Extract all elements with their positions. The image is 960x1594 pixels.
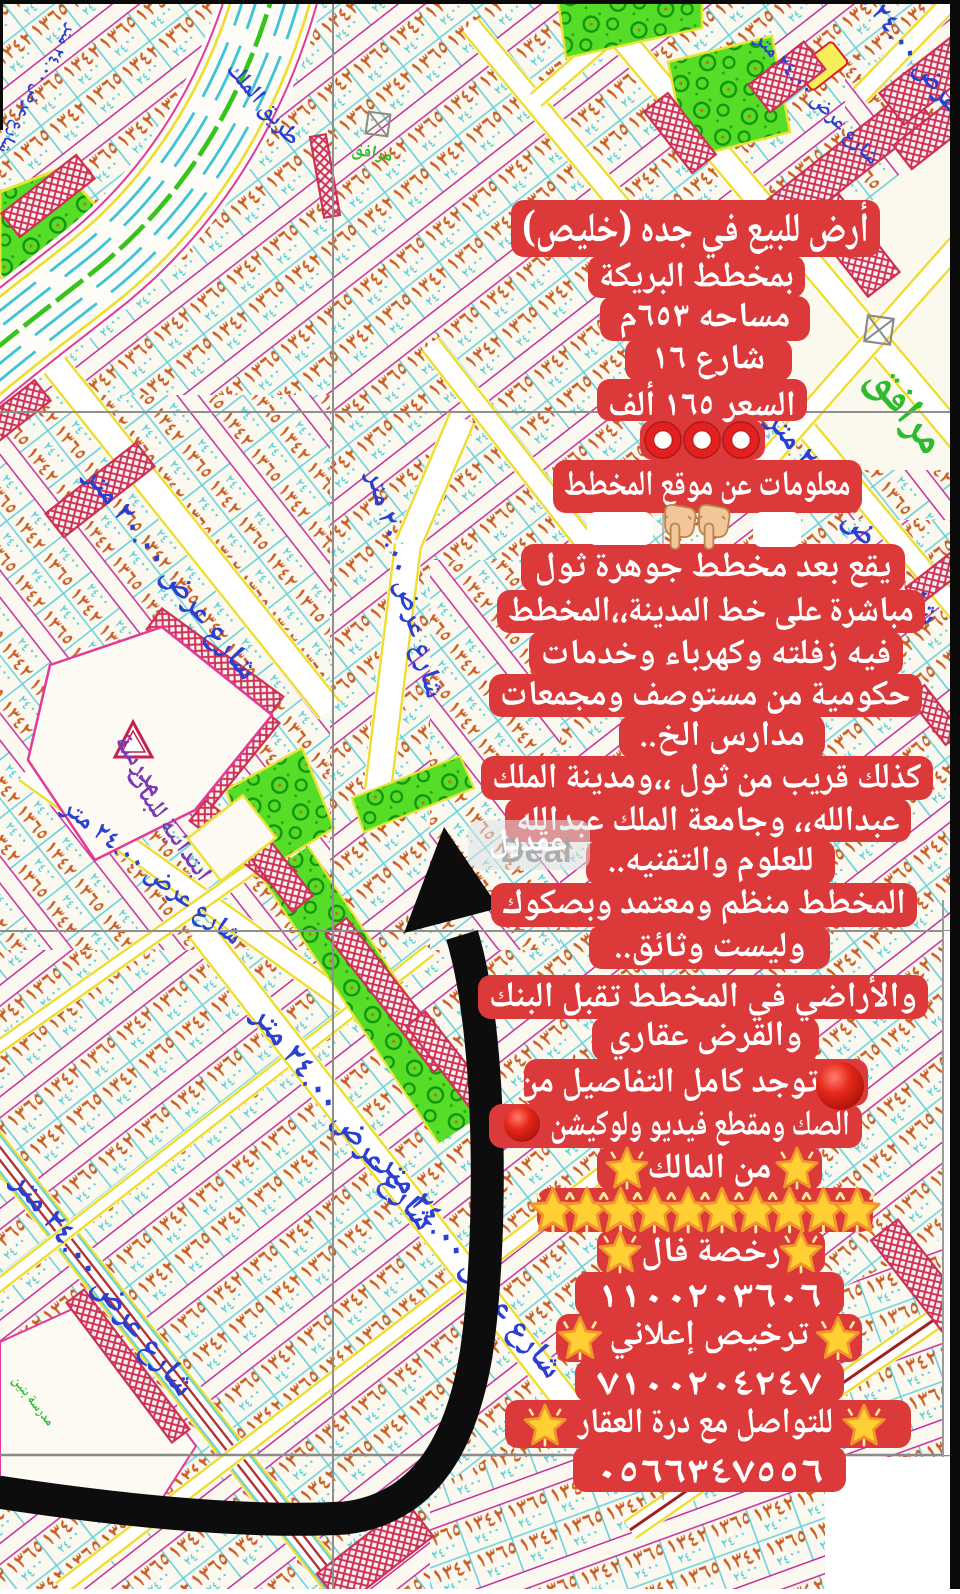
svg-text:Deal: Deal <box>500 832 572 870</box>
